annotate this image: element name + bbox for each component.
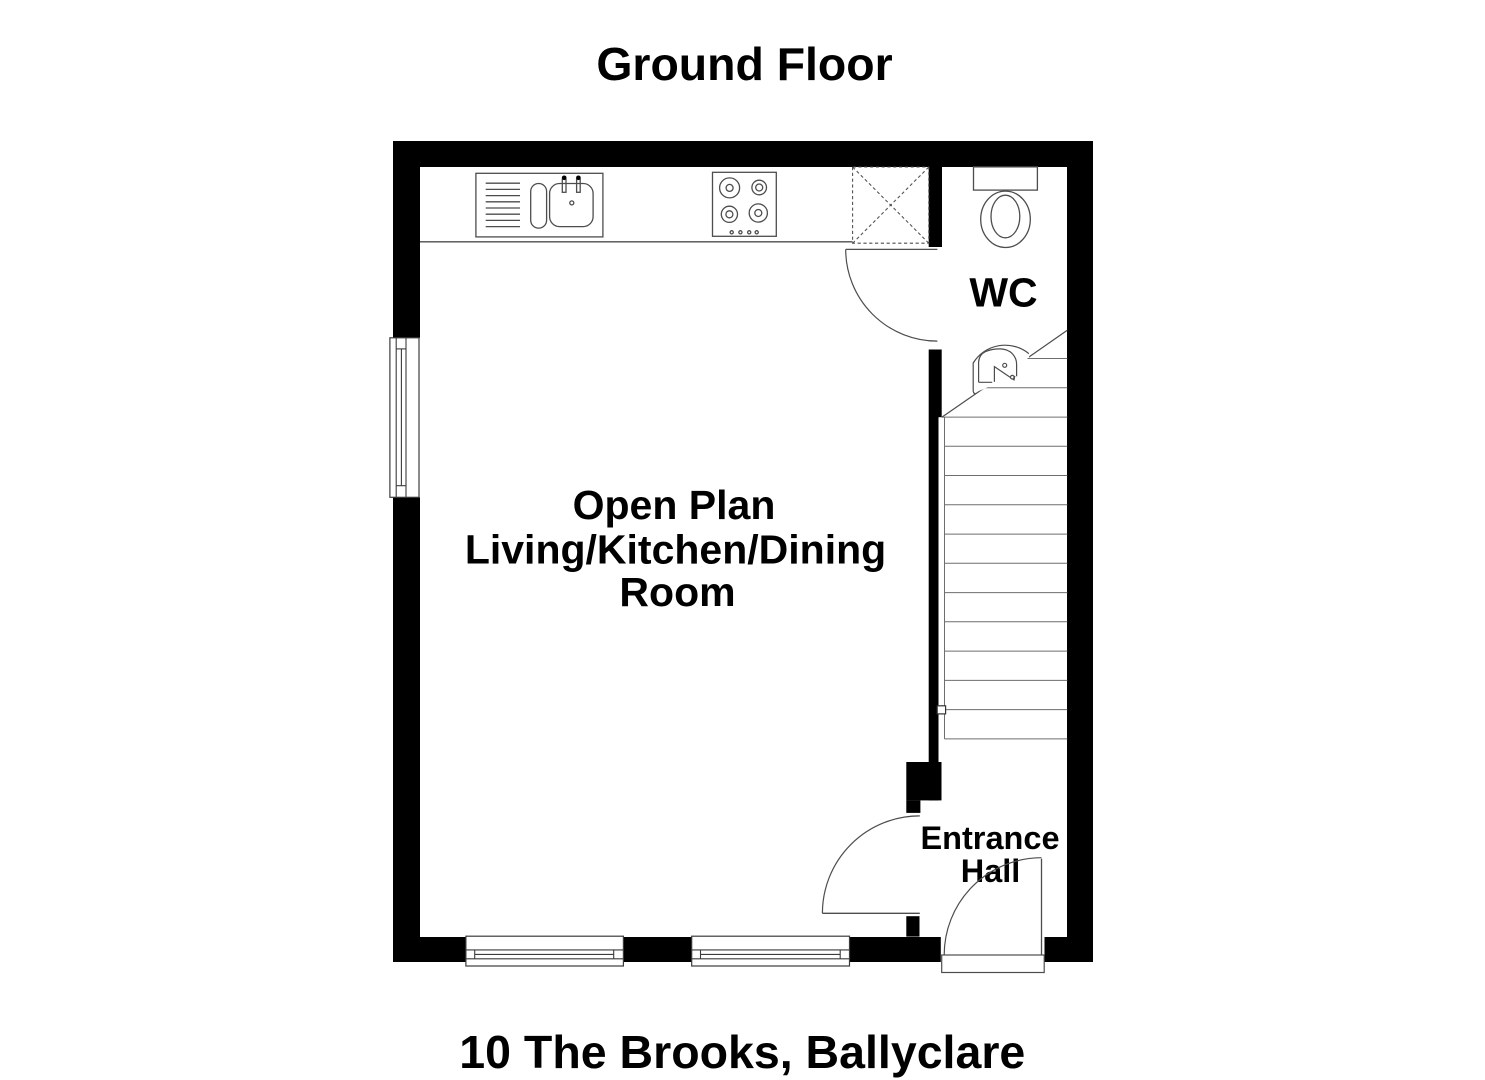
svg-text:Room: Room [619, 569, 735, 615]
svg-text:WC: WC [969, 269, 1037, 315]
svg-text:Ground Floor: Ground Floor [596, 38, 892, 90]
svg-text:Hall: Hall [961, 853, 1021, 889]
svg-text:10 The Brooks, Ballyclare: 10 The Brooks, Ballyclare [459, 1026, 1025, 1078]
svg-text:Living/Kitchen/Dining: Living/Kitchen/Dining [465, 527, 886, 573]
svg-text:Entrance: Entrance [920, 820, 1059, 856]
svg-text:Open Plan: Open Plan [573, 482, 776, 528]
